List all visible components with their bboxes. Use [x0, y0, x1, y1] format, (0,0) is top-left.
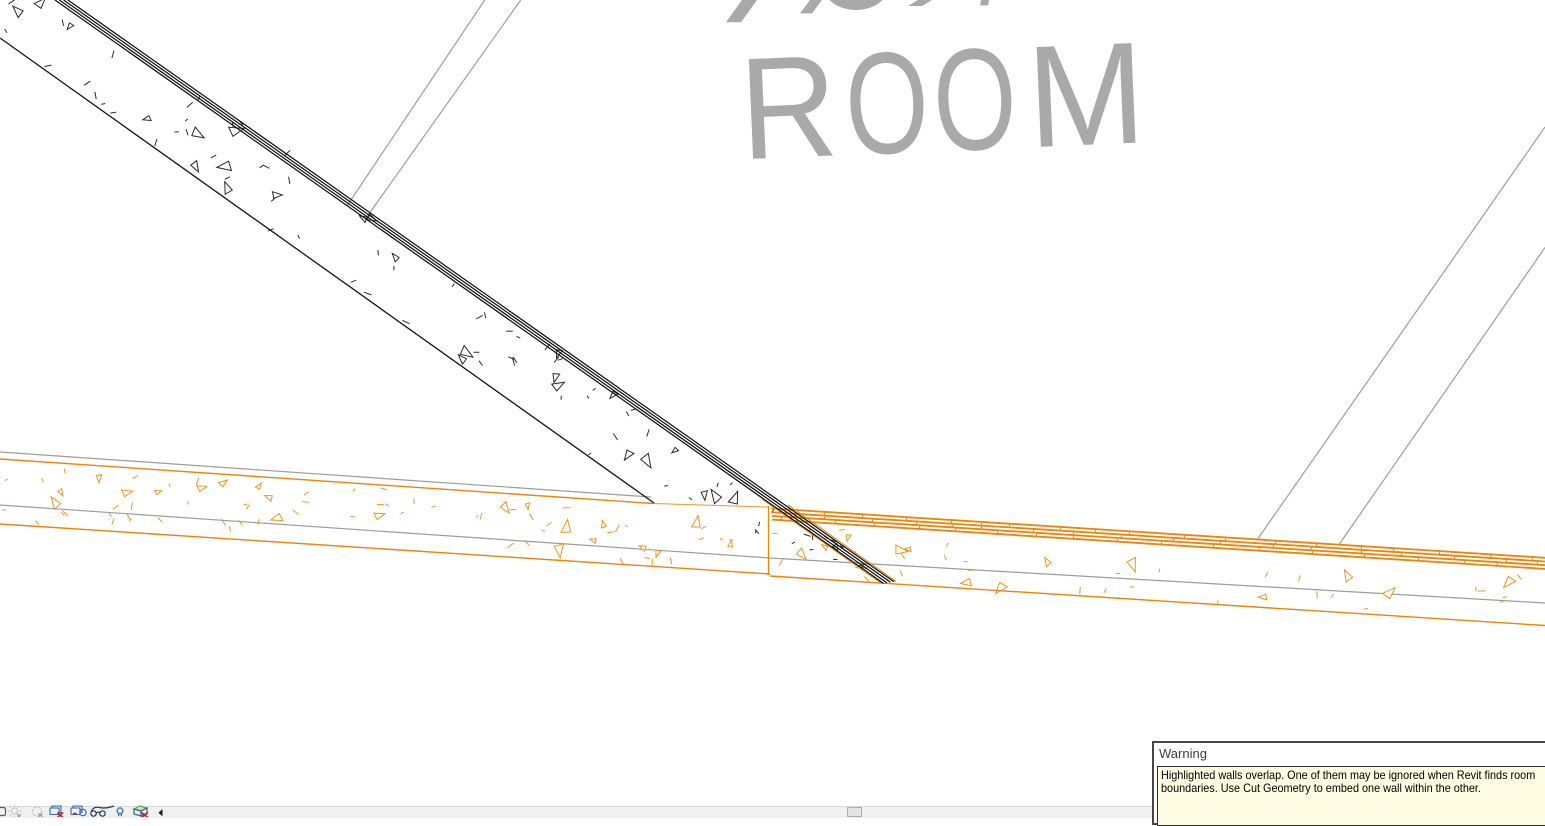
svg-text:O: O — [842, 21, 932, 186]
svg-text:R: R — [737, 24, 841, 191]
svg-text:M: M — [1024, 12, 1148, 179]
svg-text:O: O — [930, 17, 1020, 182]
